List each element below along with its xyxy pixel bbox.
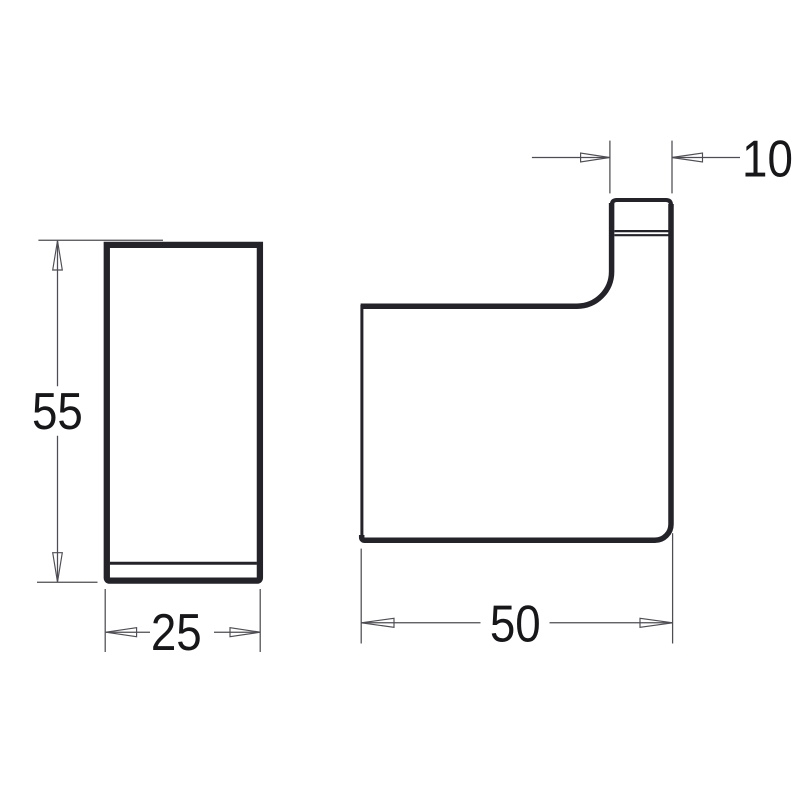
svg-text:10: 10 [742, 131, 793, 188]
svg-text:50: 50 [490, 596, 541, 653]
svg-text:55: 55 [32, 383, 83, 440]
svg-text:25: 25 [151, 604, 202, 661]
